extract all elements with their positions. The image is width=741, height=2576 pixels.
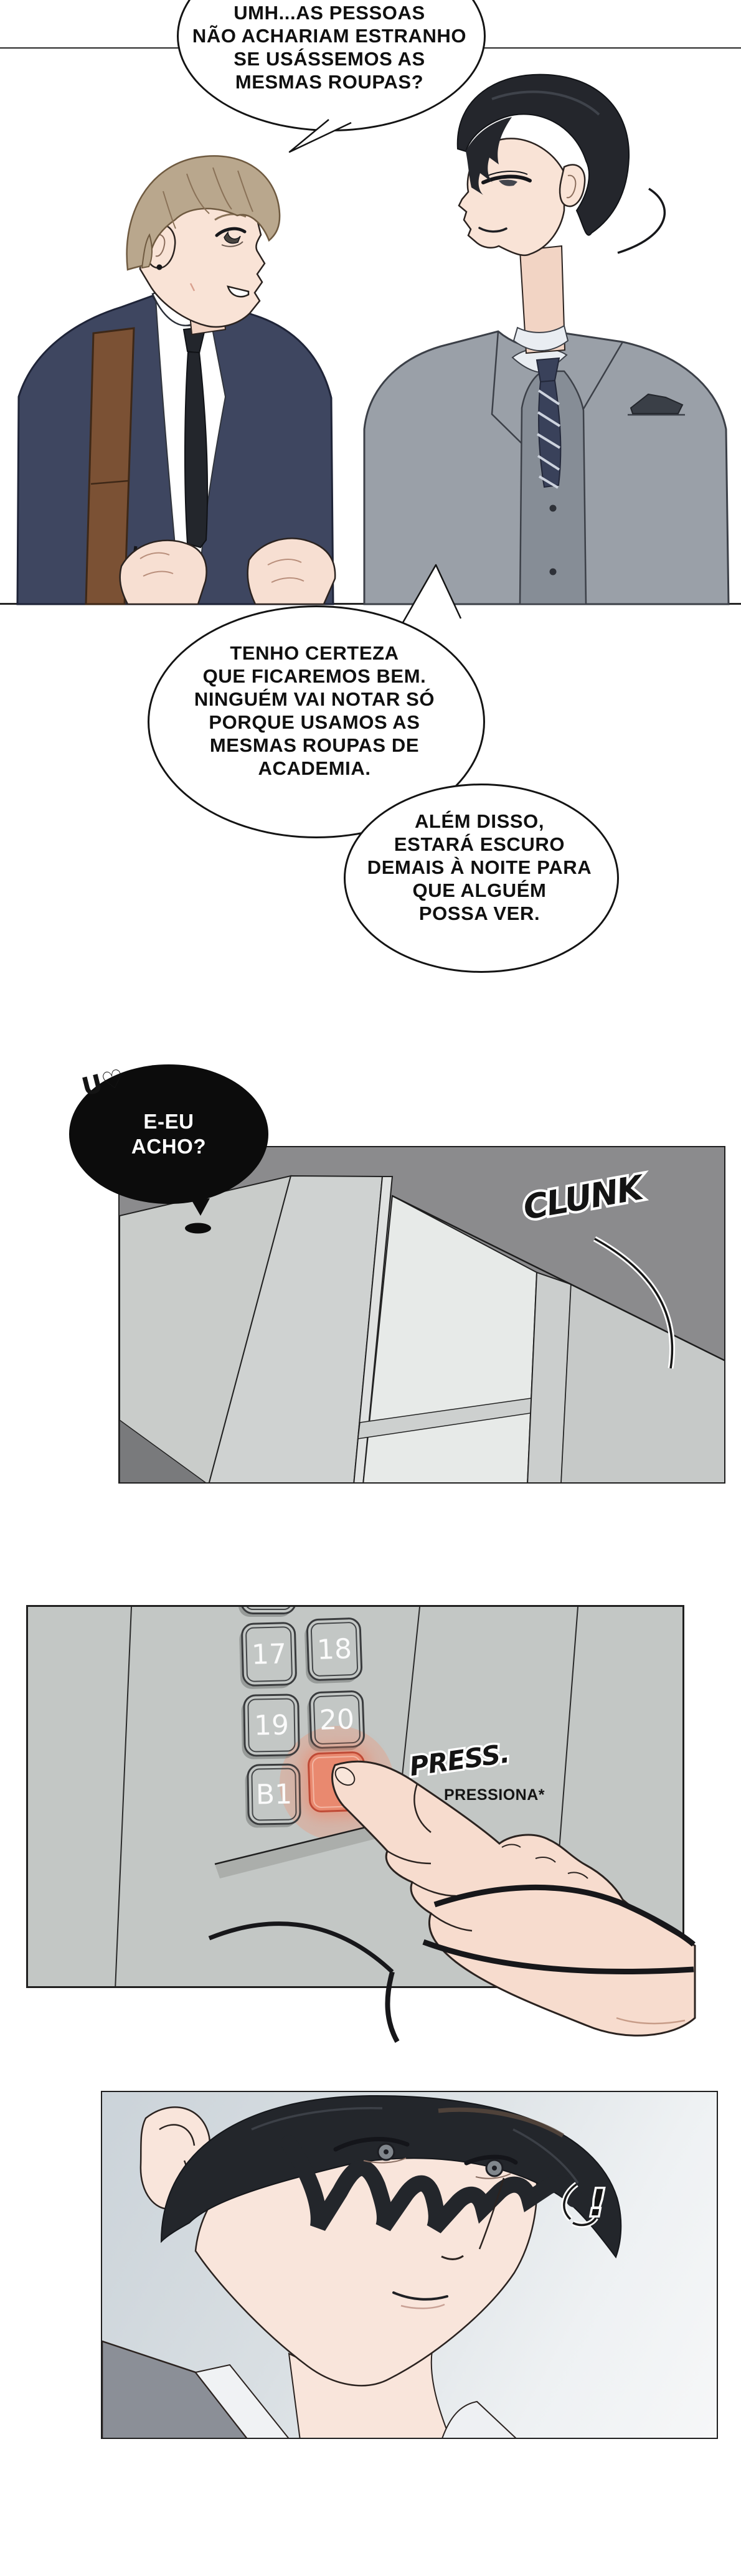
motion-line [618, 189, 664, 253]
blond-earring [157, 265, 163, 270]
speech-bubble-3-text: ALÉM DISSO, ESTARÁ ESCURO DEMAIS À NOITE… [358, 810, 601, 925]
pressing-hand [187, 1725, 722, 2049]
thought-bubble-tail [181, 1198, 224, 1237]
door-window [363, 1196, 537, 1484]
black-hair-ear [560, 164, 585, 206]
speech-bubble-1-text: UMH...AS PESSOAS NÃO ACHARIAM ESTRANHO S… [183, 1, 476, 93]
panel4-art: ! [102, 2092, 718, 2439]
speech-bubble-1-tail [274, 117, 361, 157]
comic-page: UMH...AS PESSOAS NÃO ACHARIAM ESTRANHO S… [0, 0, 741, 2576]
elevator-button-partial [240, 1605, 296, 1614]
vest-button [550, 505, 557, 512]
vest-button [550, 569, 557, 575]
striped-tie-knot [537, 358, 559, 382]
panel1-art [0, 48, 741, 604]
elevator-button-17: 17 [241, 1622, 298, 1687]
sfx-clunk: CLUNK [521, 1167, 649, 1227]
elevator-button-18: 18 [306, 1617, 362, 1681]
character-blond-man [17, 156, 335, 604]
panel2-art: CLUNK [120, 1147, 725, 1484]
murmur-mark: U♡ [73, 1058, 148, 1114]
thought-bubble-text: E-EU ACHO? [75, 1109, 262, 1159]
svg-text:CLUNK: CLUNK [521, 1167, 649, 1227]
blond-right-hand [248, 538, 336, 604]
closeup-shirt-wedge [441, 2402, 518, 2439]
svg-text:!: ! [589, 2182, 605, 2224]
speech-bubble-2-text: TENHO CERTEZA QUE FICAREMOS BEM. NINGUÉM… [168, 642, 461, 780]
right-wall-lower [561, 1284, 725, 1484]
murmur-text: U♡ [79, 1064, 127, 1102]
panel4-closeup: ! [101, 2091, 718, 2439]
character-black-hair-man [364, 75, 729, 604]
